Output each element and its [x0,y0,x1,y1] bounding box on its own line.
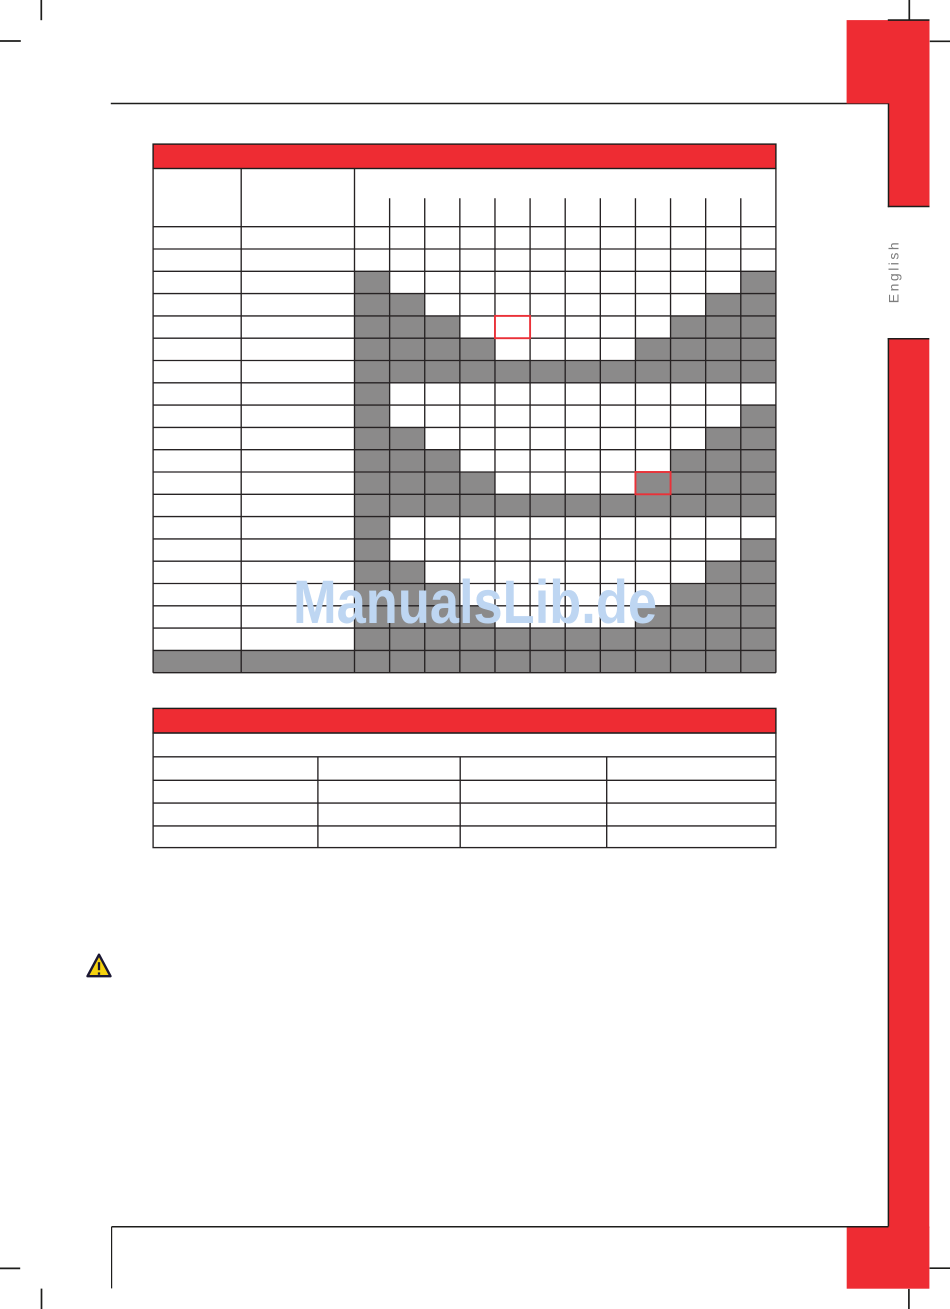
svg-text:ManualsLib.de: ManualsLib.de [293,568,657,636]
svg-text:English: English [886,240,902,303]
